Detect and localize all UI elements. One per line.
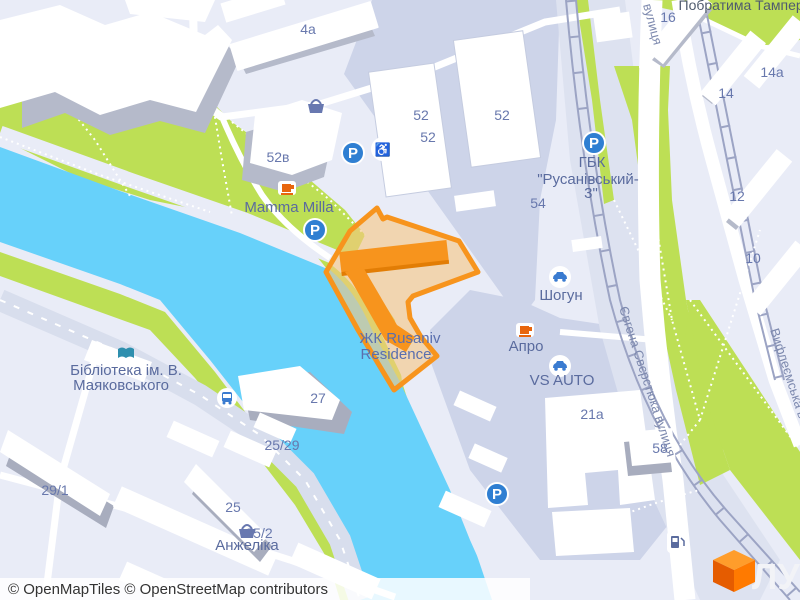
svg-text:Шогун: Шогун <box>539 287 582 304</box>
svg-text:29/1: 29/1 <box>41 482 68 498</box>
svg-text:16: 16 <box>660 9 676 25</box>
svg-text:14а: 14а <box>760 64 784 80</box>
svg-text:3": 3" <box>584 185 598 202</box>
svg-text:4а: 4а <box>300 21 316 37</box>
svg-text:Апро: Апро <box>509 338 544 355</box>
svg-text:P: P <box>492 486 502 503</box>
svg-text:Residence: Residence <box>361 346 432 363</box>
svg-text:ЛУН: ЛУН <box>752 556 800 597</box>
svg-text:P: P <box>348 145 358 162</box>
svg-text:ГБК: ГБК <box>579 154 606 171</box>
svg-text:Анжеліка: Анжеліка <box>215 537 279 554</box>
svg-text:Маяковського: Маяковського <box>73 377 169 394</box>
svg-text:54: 54 <box>530 195 546 211</box>
svg-text:♿: ♿ <box>375 142 391 157</box>
svg-text:Mamma Milla: Mamma Milla <box>244 199 334 216</box>
svg-text:P: P <box>589 135 599 152</box>
svg-text:14: 14 <box>718 85 734 101</box>
svg-text:ЖК Rusaniv: ЖК Rusaniv <box>360 330 441 347</box>
svg-text:52в: 52в <box>266 149 289 165</box>
svg-text:52: 52 <box>420 129 436 145</box>
svg-text:21а: 21а <box>580 406 604 422</box>
svg-text:27: 27 <box>310 390 326 406</box>
svg-text:© OpenMapTiles © OpenStreetMap: © OpenMapTiles © OpenStreetMap contribut… <box>8 581 328 598</box>
svg-text:25/29: 25/29 <box>264 437 299 453</box>
svg-text:Побратима Тампере: Побратима Тампере <box>679 0 800 13</box>
svg-text:VS AUTO: VS AUTO <box>530 372 595 389</box>
svg-text:52: 52 <box>413 107 429 123</box>
svg-text:10: 10 <box>745 250 761 266</box>
svg-text:52: 52 <box>494 107 510 123</box>
svg-text:P: P <box>310 222 320 239</box>
svg-text:25: 25 <box>225 499 241 515</box>
svg-text:12: 12 <box>729 188 745 204</box>
